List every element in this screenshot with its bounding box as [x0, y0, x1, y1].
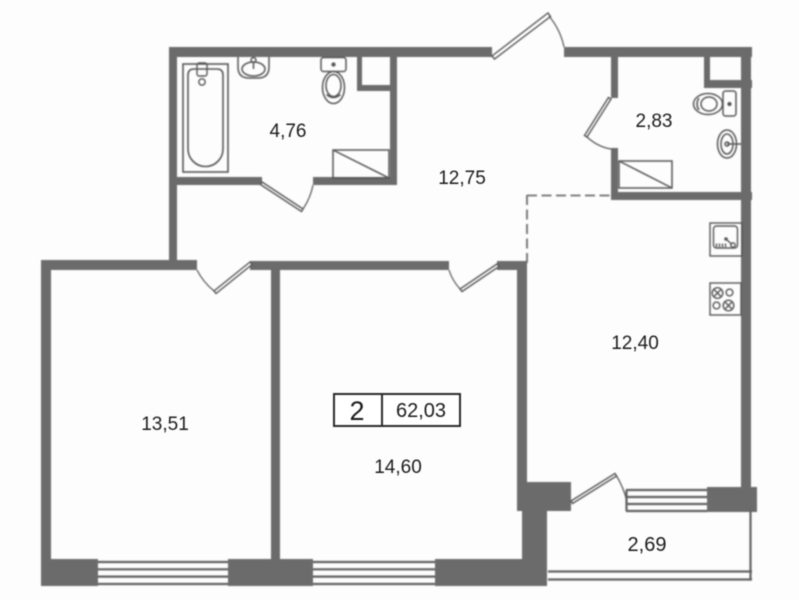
- svg-text:62,03: 62,03: [396, 400, 446, 422]
- svg-text:14,60: 14,60: [374, 457, 422, 478]
- svg-text:2,69: 2,69: [628, 534, 667, 556]
- svg-text:2: 2: [349, 396, 364, 426]
- svg-text:13,51: 13,51: [141, 414, 189, 435]
- svg-text:12,40: 12,40: [611, 333, 659, 354]
- svg-text:12,75: 12,75: [438, 168, 486, 189]
- svg-text:2,83: 2,83: [636, 111, 673, 132]
- svg-text:4,76: 4,76: [270, 121, 307, 142]
